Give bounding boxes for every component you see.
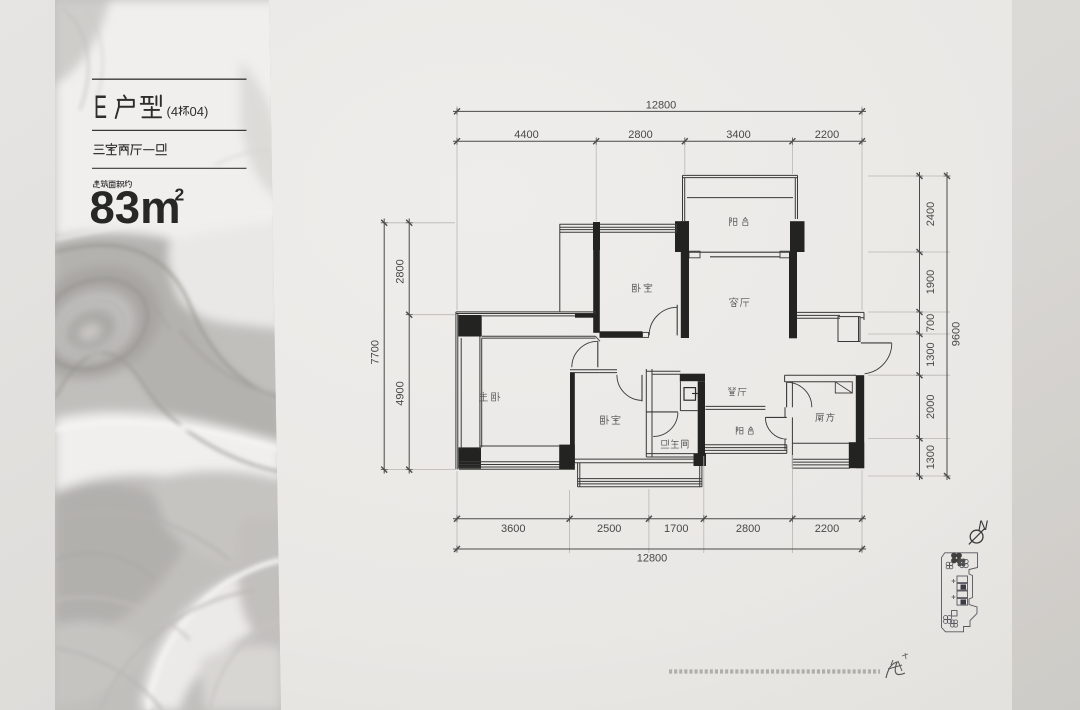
- svg-text:04): 04): [190, 104, 209, 119]
- svg-text:2800: 2800: [628, 129, 652, 141]
- svg-text:3600: 3600: [501, 523, 525, 535]
- svg-text:2500: 2500: [597, 523, 621, 535]
- svg-text:83m: 83m: [90, 182, 181, 233]
- svg-text:2800: 2800: [394, 259, 406, 283]
- svg-text:2800: 2800: [736, 523, 760, 535]
- svg-text:1300: 1300: [925, 445, 937, 469]
- svg-text:1700: 1700: [664, 523, 688, 535]
- svg-text:7700: 7700: [369, 340, 381, 364]
- svg-text:(4: (4: [167, 104, 179, 119]
- svg-text:2200: 2200: [815, 129, 839, 141]
- svg-text:9600: 9600: [951, 322, 963, 346]
- svg-text:2000: 2000: [925, 395, 937, 419]
- svg-text:2: 2: [175, 184, 185, 204]
- svg-text:1300: 1300: [925, 342, 937, 366]
- svg-text:3400: 3400: [726, 129, 750, 141]
- svg-text:700: 700: [925, 314, 937, 332]
- svg-text:4400: 4400: [514, 129, 538, 141]
- svg-text:E: E: [94, 89, 107, 125]
- svg-text:12800: 12800: [637, 553, 668, 565]
- svg-text:2200: 2200: [815, 523, 839, 535]
- svg-text:2400: 2400: [925, 202, 937, 226]
- svg-text:4900: 4900: [394, 381, 406, 405]
- svg-text:1900: 1900: [925, 270, 937, 294]
- svg-text:12800: 12800: [646, 99, 677, 111]
